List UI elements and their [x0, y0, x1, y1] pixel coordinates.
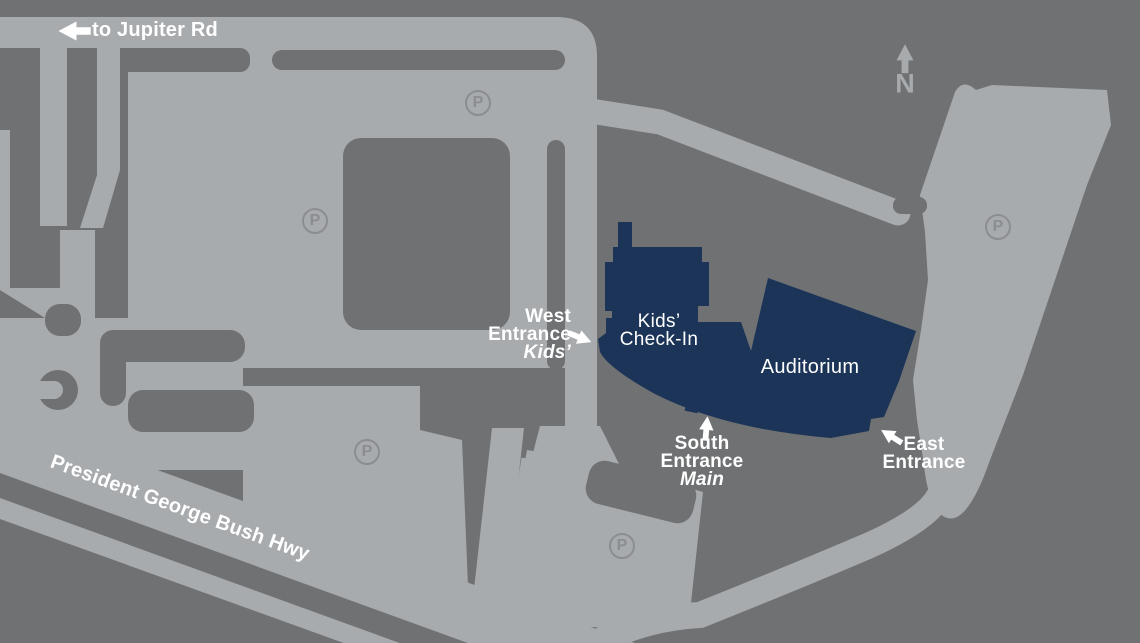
parking-icon: P: [465, 90, 491, 116]
west-side-road-a: [40, 46, 67, 226]
east-entrance-line2: Entrance: [883, 454, 966, 472]
compass-north-label: N: [895, 69, 915, 100]
northeast-drive: [597, 112, 898, 213]
island-hook: [45, 304, 81, 336]
kids-checkin-label: Kids’ Check-In: [620, 313, 698, 349]
island-bar: [100, 330, 126, 406]
parking-icon: P: [985, 214, 1011, 240]
island-bar: [120, 48, 250, 72]
west-entrance-sub: Kids’: [488, 344, 571, 362]
parking-icon: P: [302, 208, 328, 234]
south-entrance-label: South Entrance Main: [661, 435, 744, 489]
island-bar: [272, 50, 565, 70]
east-entrance-label: East Entrance: [883, 436, 966, 472]
parking-icon: P: [609, 533, 635, 559]
west-lot-center-island: [343, 138, 510, 330]
kids-checkin-line2: Check-In: [620, 331, 698, 349]
drive-end-island: [893, 197, 927, 214]
jupiter-road-label: to Jupiter Rd: [92, 21, 218, 39]
island-cutouts: [36, 381, 63, 399]
south-entrance-sub: Main: [661, 471, 744, 489]
island-bar: [128, 390, 254, 432]
west-entrance-label: West Entrance Kids’: [488, 308, 571, 362]
auditorium-label: Auditorium: [761, 358, 860, 376]
campus-map: P P P P P N to Jupiter Rd President Geor…: [0, 0, 1140, 643]
west-side-road-b: [80, 46, 120, 228]
parking-icon: P: [354, 439, 380, 465]
island-hook-cutout: [36, 381, 56, 399]
